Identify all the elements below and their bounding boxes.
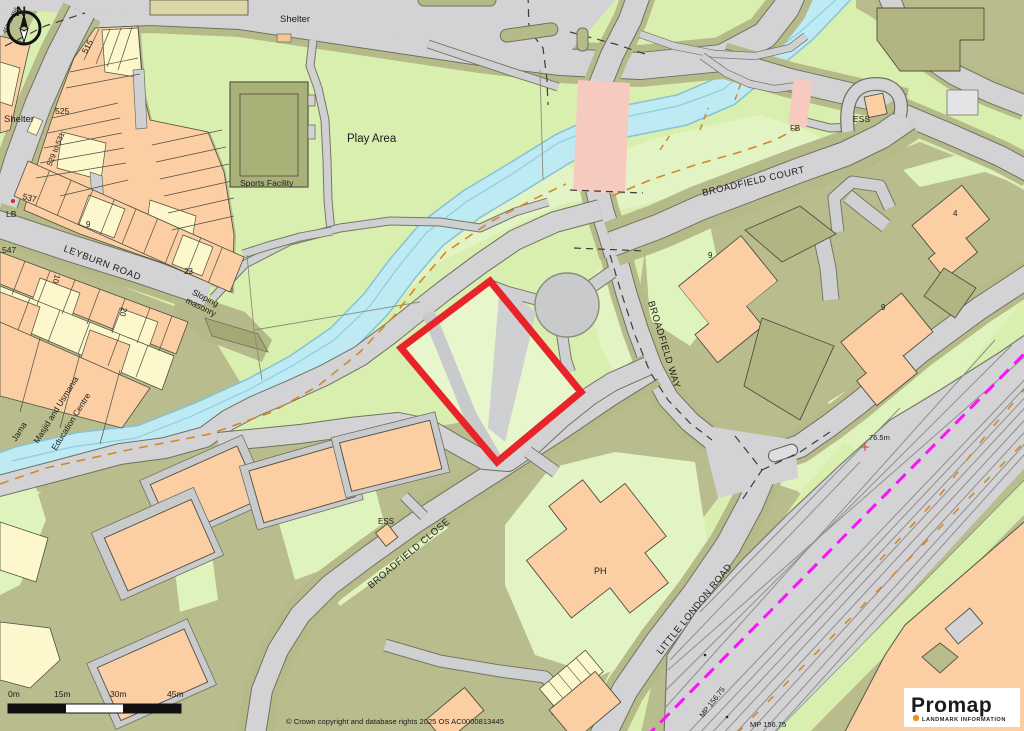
- svg-text:Sports Facility: Sports Facility: [240, 178, 294, 188]
- svg-text:525: 525: [55, 106, 69, 116]
- svg-text:LB: LB: [6, 209, 17, 219]
- svg-text:© Crown copyright and database: © Crown copyright and database rights 20…: [286, 717, 504, 726]
- svg-text:4: 4: [953, 209, 958, 218]
- svg-text:Promap: Promap: [911, 694, 992, 717]
- svg-text:76.5m: 76.5m: [869, 433, 890, 442]
- svg-text:ESS: ESS: [378, 517, 394, 526]
- svg-text:LANDMARK INFORMATION: LANDMARK INFORMATION: [922, 717, 1006, 723]
- svg-text:9: 9: [881, 303, 886, 312]
- svg-text:547: 547: [2, 245, 16, 255]
- svg-text:MP 156.75: MP 156.75: [750, 720, 786, 729]
- svg-text:N: N: [16, 3, 26, 19]
- svg-text:PH: PH: [594, 566, 607, 576]
- svg-text:Shelter: Shelter: [280, 14, 310, 25]
- svg-text:9: 9: [86, 220, 91, 229]
- svg-text:FB: FB: [790, 124, 800, 133]
- svg-text:30m: 30m: [110, 689, 127, 699]
- svg-text:45m: 45m: [167, 689, 184, 699]
- svg-text:Shelter: Shelter: [4, 114, 34, 125]
- svg-text:Play Area: Play Area: [347, 133, 397, 145]
- svg-text:0m: 0m: [8, 689, 20, 699]
- svg-text:ESS: ESS: [853, 114, 870, 124]
- svg-text:23: 23: [184, 267, 193, 276]
- svg-text:9: 9: [708, 251, 713, 260]
- svg-text:15m: 15m: [54, 689, 71, 699]
